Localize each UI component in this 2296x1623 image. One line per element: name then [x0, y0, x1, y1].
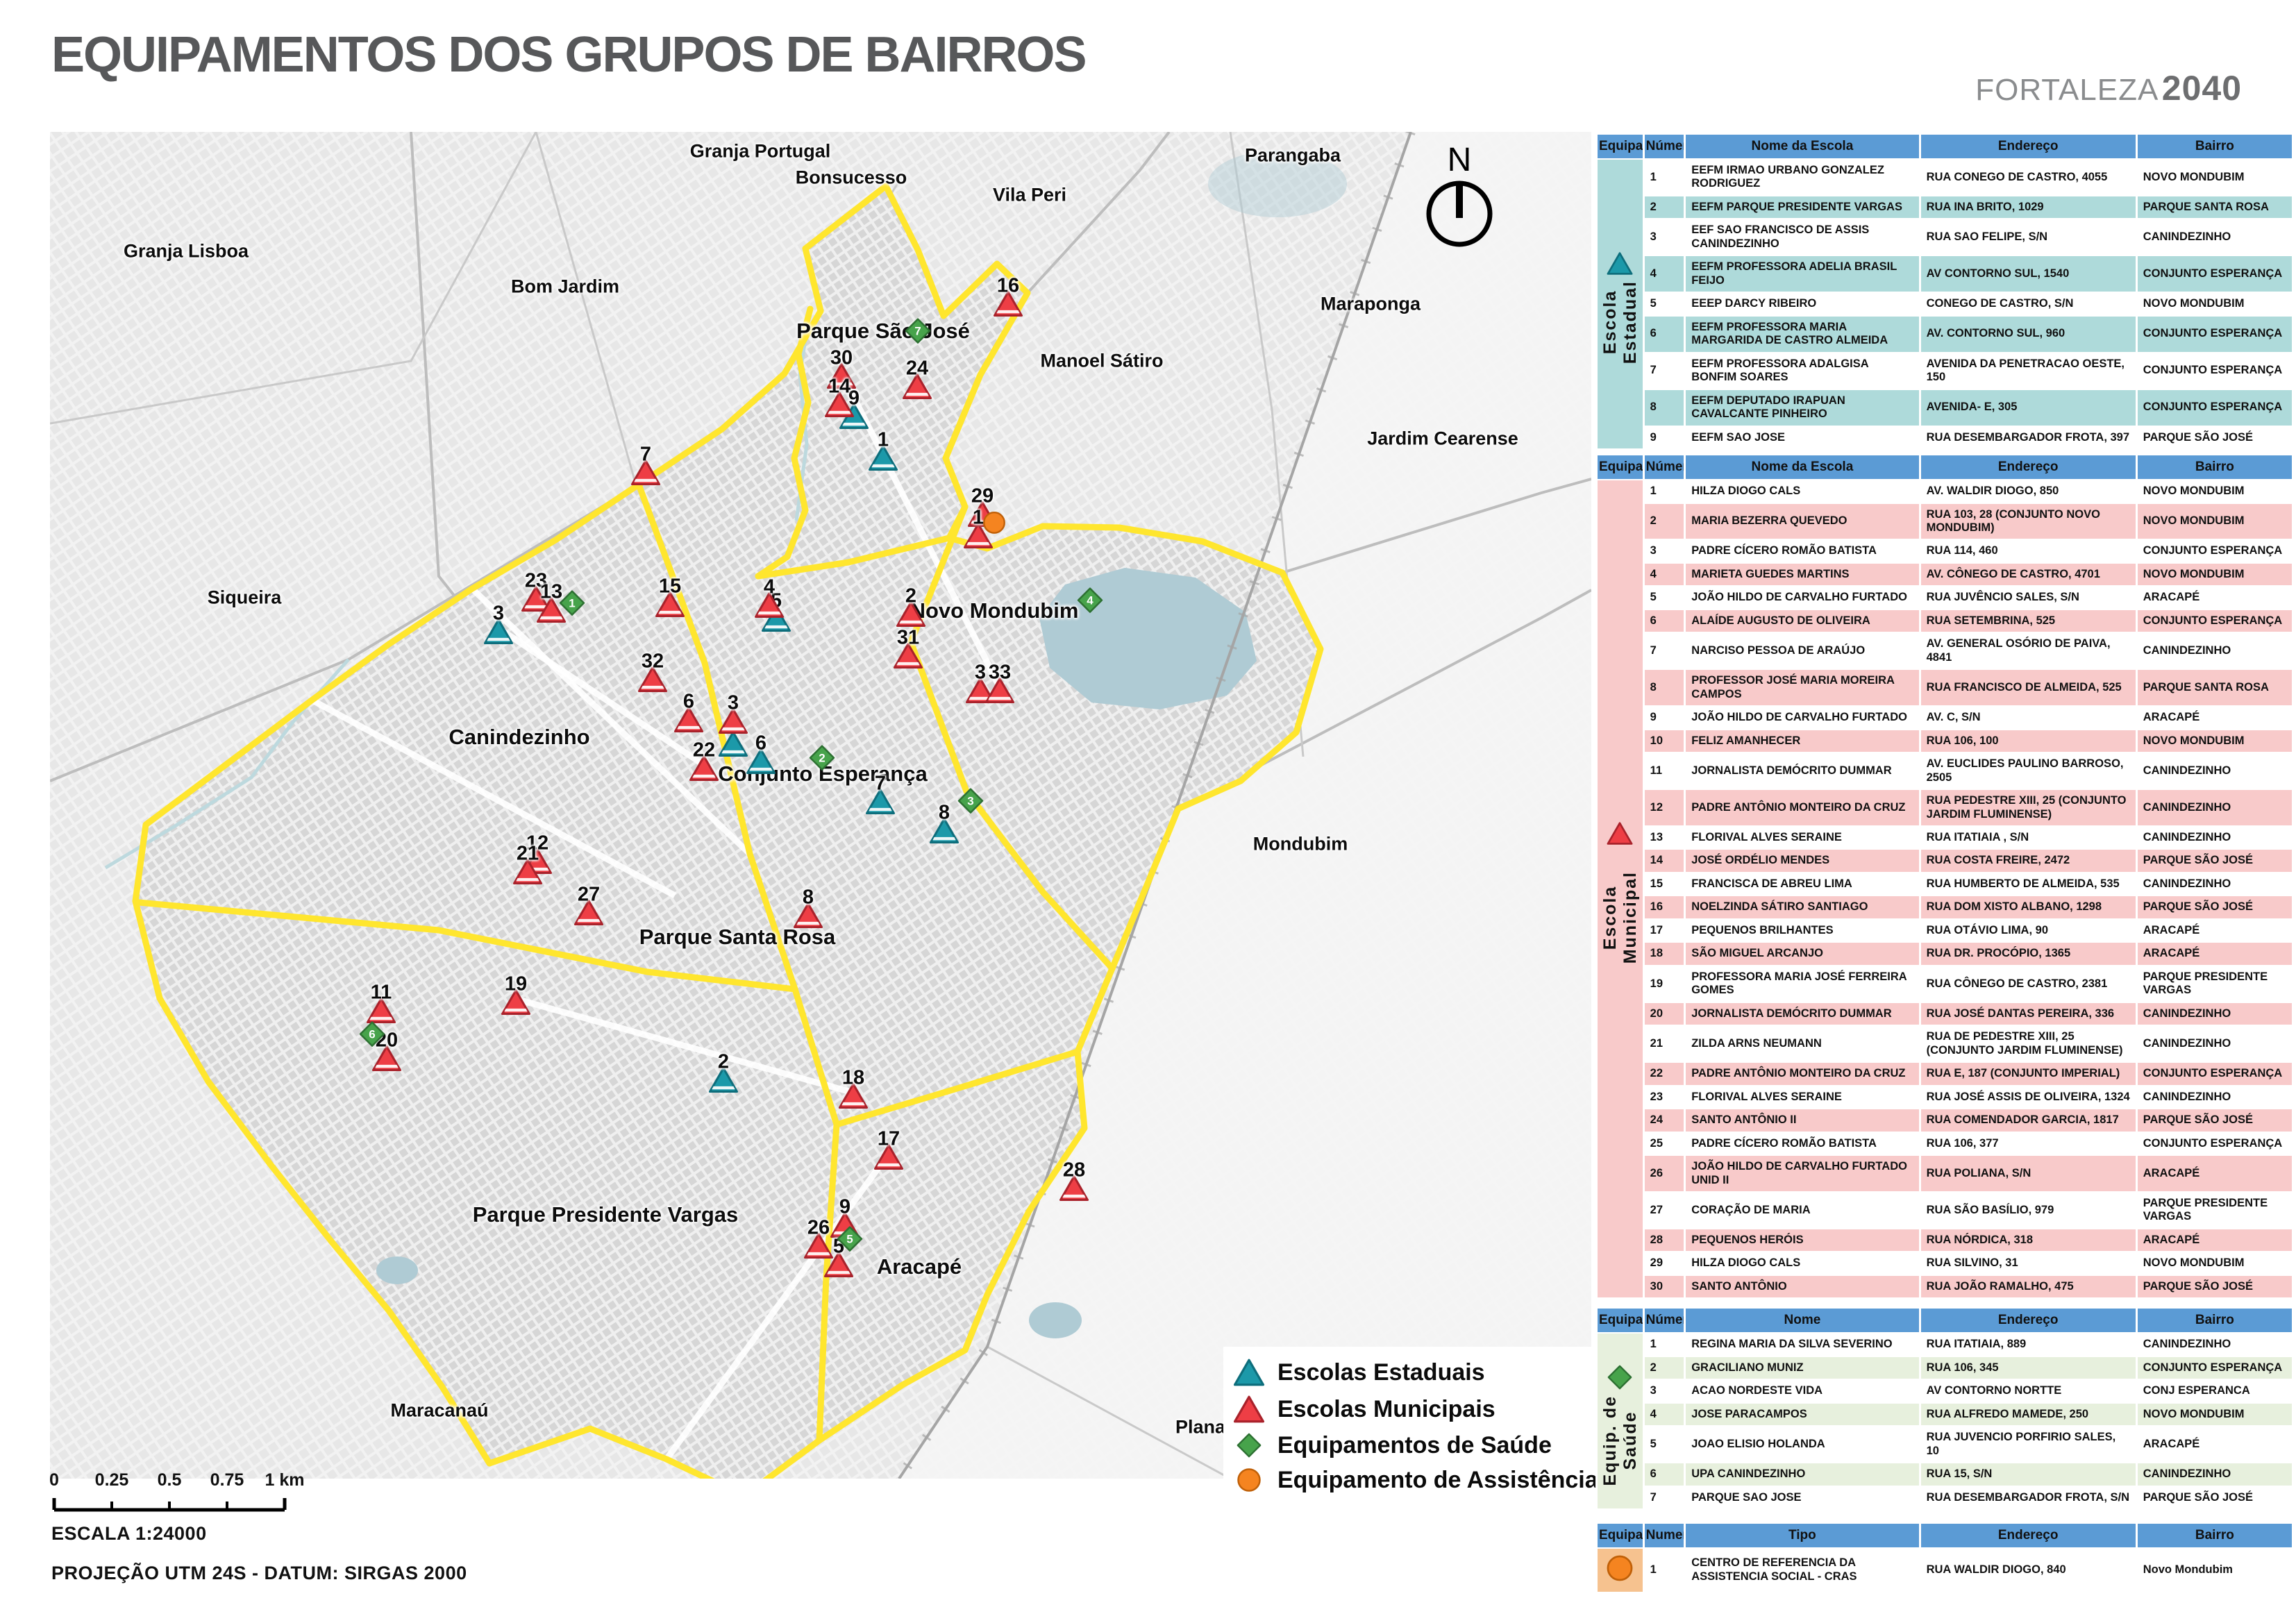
map-marker-estadual-6: 6 [745, 734, 777, 776]
cell-number: 9 [1645, 707, 1684, 728]
map-panel: N Granja PortugalBonsucessoVila PeriPara… [50, 132, 1591, 1479]
svg-text:3: 3 [967, 795, 973, 808]
map-label: Bonsucesso [796, 167, 907, 189]
cell-address: RUA WALDIR DIOGO, 840 [1921, 1549, 2136, 1591]
map-marker-municipal-6: 6 [673, 692, 705, 734]
table-row: 2EEFM PARQUE PRESIDENTE VARGASRUA INA BR… [1598, 196, 2292, 218]
cell-bairro: CANINDEZINHO [2138, 1086, 2292, 1108]
cell-address: RUA OTÁVIO LIMA, 90 [1921, 920, 2136, 941]
cell-name: ALAÍDE AUGUSTO DE OLIVEIRA [1686, 610, 1918, 632]
cell-address: AV CONTORNO SUL, 1540 [1921, 256, 2136, 292]
marker-number: 2 [905, 587, 916, 607]
cell-address: AV CONTORNO NORTTE [1921, 1380, 2136, 1402]
table-row: 6ALAÍDE AUGUSTO DE OLIVEIRARUA SETEMBRIN… [1598, 610, 2292, 632]
cell-bairro: ARACAPÉ [2138, 1229, 2292, 1251]
cell-number: 30 [1645, 1276, 1684, 1297]
marker-number: 9 [839, 1197, 850, 1218]
table-row: 7NARCISO PESSOA DE ARAÚJOAV. GENERAL OSÓ… [1598, 633, 2292, 668]
marker-number: 6 [755, 734, 766, 754]
table-row: 4MARIETA GUEDES MARTINSAV. CÔNEGO DE CAS… [1598, 564, 2292, 585]
cell-number: 4 [1645, 1404, 1684, 1425]
table-social: EquipamentosNumeroTipoEndereçoBairro 1CE… [1595, 1522, 2294, 1592]
map-marker-saude-6: 6 6 [358, 1020, 387, 1049]
cell-address: RUA 114, 460 [1921, 540, 2136, 562]
cell-bairro: CANINDEZINHO [2138, 790, 2292, 825]
column-header: Nome da Escola [1686, 135, 1918, 158]
table-header-row: EquipamentoNúmeroNome da EscolaEndereçoB… [1598, 135, 2292, 158]
marker-number: 21 [517, 844, 539, 864]
table-row: Escola Municipal 1HILZA DIOGO CALSAV. WA… [1598, 480, 2292, 502]
equipment-type-cell: Equip. de Saúde [1598, 1334, 1643, 1508]
cell-number: 7 [1645, 1487, 1684, 1508]
cell-name: HILZA DIOGO CALS [1686, 1252, 1918, 1274]
map-marker-saude-5: 5 5 [835, 1225, 864, 1254]
map-label: Granja Lisboa [124, 241, 249, 262]
equipment-tables: EquipamentoNúmeroNome da EscolaEndereçoB… [1595, 133, 2294, 1593]
map-marker-municipal-16: 16 [992, 276, 1024, 319]
marker-number: 14 [828, 377, 850, 397]
cell-number: 1 [1645, 480, 1684, 502]
equipment-type-cell: Escola Municipal [1598, 480, 1643, 1297]
cell-name: FRANCISCA DE ABREU LIMA [1686, 873, 1918, 895]
cell-name: PADRE ANTÔNIO MONTEIRO DA CRUZ [1686, 790, 1918, 825]
cell-address: RUA INA BRITO, 1029 [1921, 196, 2136, 218]
marker-number: 7 [640, 445, 651, 465]
cell-number: 4 [1645, 256, 1684, 292]
brand-name: FORTALEZA [1975, 73, 2159, 107]
cell-bairro: CONJUNTO ESPERANÇA [2138, 1357, 2292, 1379]
table-row: 29HILZA DIOGO CALSRUA SILVINO, 31NOVO MO… [1598, 1252, 2292, 1274]
column-header: Equipamento [1598, 455, 1643, 479]
cell-address: RUA JOÃO RAMALHO, 475 [1921, 1276, 2136, 1297]
circle-icon [981, 510, 1007, 536]
cell-address: RUA CONEGO DE CASTRO, 4055 [1921, 160, 2136, 195]
map-marker-estadual-3: 3 [483, 604, 514, 646]
marker-number: 8 [939, 803, 950, 823]
map-label: Mondubim [1253, 834, 1348, 855]
cell-bairro: NOVO MONDUBIM [2138, 564, 2292, 585]
saude-icon [1606, 1363, 1634, 1395]
diamond-icon: 2 [807, 743, 837, 773]
diamond-icon: 7 [903, 317, 932, 346]
cell-bairro: CONJUNTO ESPERANÇA [2138, 353, 2292, 389]
cell-address: RUA COSTA FREIRE, 2472 [1921, 850, 2136, 871]
cell-number: 5 [1645, 1427, 1684, 1462]
cell-bairro: ARACAPÉ [2138, 943, 2292, 964]
cell-address: RUA 15, S/N [1921, 1463, 2136, 1485]
map-label: Bom Jardim [511, 276, 619, 298]
cell-address: RUA 106, 377 [1921, 1133, 2136, 1154]
cell-bairro: PARQUE SÃO JOSÉ [2138, 427, 2292, 448]
cell-bairro: NOVO MONDUBIM [2138, 480, 2292, 502]
table-row: 5JOAO ELISIO HOLANDARUA JUVENCIO PORFIRI… [1598, 1427, 2292, 1462]
scale-tick-label: 0 [49, 1470, 59, 1490]
cell-address: RUA DESEMBARGADOR FROTA, 397 [1921, 427, 2136, 448]
cell-name: EEF SAO FRANCISCO DE ASSIS CANINDEZINHO [1686, 219, 1918, 255]
column-header: Número [1645, 135, 1684, 158]
cell-number: 26 [1645, 1156, 1684, 1191]
table-row: 6EEFM PROFESSORA MARIA MARGARIDA DE CAST… [1598, 317, 2292, 352]
marker-number: 17 [878, 1129, 900, 1150]
marker-number: 7 [875, 774, 886, 794]
cell-bairro: PARQUE SÃO JOSÉ [2138, 1109, 2292, 1131]
map-label: Novo Mondubim [910, 598, 1079, 623]
diamond-icon: 5 [835, 1225, 864, 1254]
cell-bairro: CANINDEZINHO [2138, 827, 2292, 848]
cell-address: RUA COMENDADOR GARCIA, 1817 [1921, 1109, 2136, 1131]
scale-tick-label: 0.25 [95, 1470, 129, 1490]
cell-name: PEQUENOS HERÓIS [1686, 1229, 1918, 1251]
cell-address: RUA DE PEDESTRE XIII, 25 (CONJUNTO JARDI… [1921, 1026, 2136, 1061]
cell-name: MARIETA GUEDES MARTINS [1686, 564, 1918, 585]
cell-number: 8 [1645, 390, 1684, 426]
cell-address: AV. EUCLIDES PAULINO BARROSO, 2505 [1921, 753, 2136, 789]
map-label: Siqueira [208, 587, 282, 609]
circle-icon [1604, 1553, 1635, 1583]
cell-number: 20 [1645, 1003, 1684, 1025]
marker-number: 18 [842, 1068, 864, 1088]
cell-number: 16 [1645, 896, 1684, 918]
cell-bairro: ARACAPÉ [2138, 1156, 2292, 1191]
cell-number: 21 [1645, 1026, 1684, 1061]
map-marker-municipal-24: 24 [901, 359, 933, 401]
cell-name: JOÃO HILDO DE CARVALHO FURTADO UNID II [1686, 1156, 1918, 1191]
map-label: Vila Peri [993, 185, 1066, 206]
cell-bairro: CONJUNTO ESPERANÇA [2138, 390, 2292, 426]
table-row: 17PEQUENOS BRILHANTESRUA OTÁVIO LIMA, 90… [1598, 920, 2292, 941]
cell-number: 3 [1645, 1380, 1684, 1402]
table-header-row: EquipamentoNúmeroNomeEndereçoBairro [1598, 1309, 2292, 1332]
cell-address: RUA NÓRDICA, 318 [1921, 1229, 2136, 1251]
map-label: Parque São José [796, 319, 970, 344]
table-row: 28PEQUENOS HERÓISRUA NÓRDICA, 318ARACAPÉ [1598, 1229, 2292, 1251]
cell-bairro: NOVO MONDUBIM [2138, 293, 2292, 314]
marker-number: 30 [830, 348, 853, 369]
equipment-type-cell: Escola Estadual [1598, 160, 1643, 448]
table-row: 20JORNALISTA DEMÓCRITO DUMMARRUA JOSÉ DA… [1598, 1003, 2292, 1025]
cell-address: RUA PEDESTRE XIII, 25 (CONJUNTO JARDIM F… [1921, 790, 2136, 825]
cell-bairro: PARQUE SÃO JOSÉ [2138, 1487, 2292, 1508]
cell-bairro: NOVO MONDUBIM [2138, 160, 2292, 195]
svg-text:5: 5 [846, 1233, 853, 1246]
cell-number: 1 [1645, 160, 1684, 195]
cell-address: RUA 106, 100 [1921, 730, 2136, 752]
table-row: 27CORAÇÃO DE MARIARUA SÃO BASÍLIO, 979PA… [1598, 1193, 2292, 1228]
cell-name: PARQUE SAO JOSE [1686, 1487, 1918, 1508]
cell-bairro: ARACAPÉ [2138, 1427, 2292, 1462]
map-label: Maracanaú [390, 1400, 488, 1422]
cell-bairro: CANINDEZINHO [2138, 1463, 2292, 1485]
table-row: Escola Estadual 1EEFM IRMAO URBANO GONZA… [1598, 160, 2292, 195]
marker-number: 19 [505, 975, 527, 995]
cell-name: JOAO ELISIO HOLANDA [1686, 1427, 1918, 1462]
cell-name: SANTO ANTÔNIO II [1686, 1109, 1918, 1131]
cell-bairro: PARQUE PRESIDENTE VARGAS [2138, 966, 2292, 1002]
map-marker-municipal-27: 27 [573, 885, 605, 927]
diamond-icon: 4 [1075, 586, 1105, 615]
map-label: Parangaba [1245, 145, 1341, 167]
map-marker-municipal-19: 19 [500, 975, 532, 1017]
compass-north-label: N [1448, 142, 1472, 178]
table-row: 3EEF SAO FRANCISCO DE ASSIS CANINDEZINHO… [1598, 219, 2292, 255]
cell-bairro: CANINDEZINHO [2138, 1003, 2292, 1025]
cell-address: RUA POLIANA, S/N [1921, 1156, 2136, 1191]
cell-address: RUA DOM XISTO ALBANO, 1298 [1921, 896, 2136, 918]
table-row: 16NOELZINDA SÁTIRO SANTIAGORUA DOM XISTO… [1598, 896, 2292, 918]
brand-year: 2040 [2162, 69, 2242, 108]
legend-label: Escolas Estaduais [1277, 1359, 1485, 1386]
map-marker-estadual-1: 1 [867, 430, 899, 473]
cell-name: NOELZINDA SÁTIRO SANTIAGO [1686, 896, 1918, 918]
table-saude: EquipamentoNúmeroNomeEndereçoBairro Equi… [1595, 1307, 2294, 1510]
cell-name: SÃO MIGUEL ARCANJO [1686, 943, 1918, 964]
map-marker-municipal-28: 28 [1058, 1161, 1090, 1203]
table-side-label: Escola Municipal [1600, 871, 1641, 964]
marker-number: 2 [718, 1052, 729, 1073]
cell-number: 12 [1645, 790, 1684, 825]
legend-label: Equipamentos de Saúde [1277, 1432, 1552, 1459]
scale-text: ESCALA 1:24000 [51, 1523, 440, 1545]
cell-bairro: CANINDEZINHO [2138, 633, 2292, 668]
pond [376, 1256, 418, 1284]
column-header: Endereço [1921, 1524, 2136, 1547]
cell-name: FLORIVAL ALVES SERAINE [1686, 827, 1918, 848]
column-header: Equipamento [1598, 1309, 1643, 1332]
map-marker-municipal-33: 33 [984, 663, 1016, 705]
cell-name: PROFESSORA MARIA JOSÉ FERREIRA GOMES [1686, 966, 1918, 1002]
cell-name: SANTO ANTÔNIO [1686, 1276, 1918, 1297]
table-header-row: EquipamentoNúmeroNome da EscolaEndereçoB… [1598, 455, 2292, 479]
cell-name: MARIA BEZERRA QUEVEDO [1686, 504, 1918, 539]
cell-number: 11 [1645, 753, 1684, 789]
cell-number: 19 [1645, 966, 1684, 1002]
cell-name: FLORIVAL ALVES SERAINE [1686, 1086, 1918, 1108]
cell-bairro: NOVO MONDUBIM [2138, 1252, 2292, 1274]
cell-name: JOÃO HILDO DE CARVALHO FURTADO [1686, 587, 1918, 608]
table-row: 10FELIZ AMANHECERRUA 106, 100NOVO MONDUB… [1598, 730, 2292, 752]
cell-bairro: CANINDEZINHO [2138, 753, 2292, 789]
map-label: Maraponga [1321, 294, 1421, 315]
cell-address: AV. CONTORNO SUL, 960 [1921, 317, 2136, 352]
cell-address: AVENIDA DA PENETRACAO OESTE, 150 [1921, 353, 2136, 389]
cell-number: 22 [1645, 1063, 1684, 1084]
map-marker-municipal-21: 21 [512, 844, 544, 886]
table-row: 13FLORIVAL ALVES SERAINERUA ITATIAIA , S… [1598, 827, 2292, 848]
cell-number: 1 [1645, 1334, 1684, 1355]
cell-address: RUA CÔNEGO DE CASTRO, 2381 [1921, 966, 2136, 1002]
cell-name: ZILDA ARNS NEUMANN [1686, 1026, 1918, 1061]
cell-number: 17 [1645, 920, 1684, 941]
cell-name: NARCISO PESSOA DE ARAÚJO [1686, 633, 1918, 668]
column-header: Bairro [2138, 1524, 2292, 1547]
cell-address: RUA JUVÊNCIO SALES, S/N [1921, 587, 2136, 608]
column-header: Nome da Escola [1686, 455, 1918, 479]
cell-name: JOSÉ ORDÉLIO MENDES [1686, 850, 1918, 871]
table-row: 22PADRE ANTÔNIO MONTEIRO DA CRUZRUA E, 1… [1598, 1063, 2292, 1084]
cell-number: 6 [1645, 610, 1684, 632]
cell-number: 3 [1645, 219, 1684, 255]
legend-estadual-icon [1230, 1358, 1268, 1388]
map-label: Granja Portugal [690, 141, 831, 162]
svg-text:6: 6 [369, 1028, 375, 1041]
municipal-icon [1606, 821, 1634, 850]
table-side-label: Equip. de Saúde [1600, 1395, 1641, 1486]
table-header-row: EquipamentosNumeroTipoEndereçoBairro [1598, 1524, 2292, 1547]
column-header: Endereço [1921, 135, 2136, 158]
scale-tick-label: 0.75 [210, 1470, 244, 1490]
projection-text: PROJEÇÃO UTM 24S - DATUM: SIRGAS 2000 [51, 1563, 440, 1584]
cell-bairro: NOVO MONDUBIM [2138, 730, 2292, 752]
cell-address: CONEGO DE CASTRO, S/N [1921, 293, 2136, 314]
cell-number: 10 [1645, 730, 1684, 752]
cell-number: 6 [1645, 317, 1684, 352]
cell-name: EEFM DEPUTADO IRAPUAN CAVALCANTE PINHEIR… [1686, 390, 1918, 426]
cell-number: 25 [1645, 1133, 1684, 1154]
map-marker-municipal-31: 31 [892, 628, 924, 671]
cell-bairro: CANINDEZINHO [2138, 1026, 2292, 1061]
cell-name: GRACILIANO MUNIZ [1686, 1357, 1918, 1379]
legend-label: Escolas Municipais [1277, 1396, 1495, 1423]
table-row: 18SÃO MIGUEL ARCANJORUA DR. PROCÓPIO, 13… [1598, 943, 2292, 964]
triangle-icon [1232, 1358, 1266, 1388]
table-row: 7PARQUE SAO JOSERUA DESEMBARGADOR FROTA,… [1598, 1487, 2292, 1508]
pond [1029, 1302, 1082, 1338]
cell-bairro: ARACAPÉ [2138, 707, 2292, 728]
table-row: 7EEFM PROFESSORA ADALGISA BONFIM SOARESA… [1598, 353, 2292, 389]
table-row: 2GRACILIANO MUNIZRUA 106, 345CONJUNTO ES… [1598, 1357, 2292, 1379]
table-row: 6UPA CANINDEZINHORUA 15, S/NCANINDEZINHO [1598, 1463, 2292, 1485]
marker-number: 6 [683, 692, 694, 712]
marker-number: 33 [989, 663, 1011, 683]
map-marker-saude-2: 2 2 [807, 743, 837, 773]
marker-number: 29 [971, 487, 994, 507]
cell-bairro: PARQUE SÃO JOSÉ [2138, 1276, 2292, 1297]
cell-bairro: Novo Mondubim [2138, 1549, 2292, 1591]
cell-bairro: CONJUNTO ESPERANÇA [2138, 540, 2292, 562]
cell-address: RUA DESEMBARGADOR FROTA, S/N [1921, 1487, 2136, 1508]
table-row: 21ZILDA ARNS NEUMANNRUA DE PEDESTRE XIII… [1598, 1026, 2292, 1061]
cell-number: 29 [1645, 1252, 1684, 1274]
circle-icon [1235, 1466, 1263, 1494]
cell-name: PROFESSOR JOSÉ MARIA MOREIRA CAMPOS [1686, 670, 1918, 705]
cell-bairro: ARACAPÉ [2138, 920, 2292, 941]
cell-name: EEEP DARCY RIBEIRO [1686, 293, 1918, 314]
map-marker-municipal-7: 7 [630, 445, 662, 487]
cell-address: RUA 103, 28 (CONJUNTO NOVO MONDUBIM) [1921, 504, 2136, 539]
column-header: Bairro [2138, 1309, 2292, 1332]
estadual-icon [1606, 251, 1634, 280]
legend-saude-icon [1230, 1431, 1268, 1459]
cell-bairro: NOVO MONDUBIM [2138, 1404, 2292, 1425]
marker-number: 8 [803, 888, 814, 908]
table-row: 5JOÃO HILDO DE CARVALHO FURTADORUA JUVÊN… [1598, 587, 2292, 608]
equipment-type-cell [1598, 1549, 1643, 1591]
map-marker-estadual-2: 2 [707, 1052, 739, 1095]
scale-tick-labels: 00.250.50.751 km [51, 1470, 440, 1491]
cell-name: EEFM PROFESSORA ADELIA BRASIL FEIJO [1686, 256, 1918, 292]
cell-number: 18 [1645, 943, 1684, 964]
cell-address: AV. CÔNEGO DE CASTRO, 4701 [1921, 564, 2136, 585]
marker-number: 11 [371, 983, 392, 1003]
cell-address: RUA JOSÉ DANTAS PEREIRA, 336 [1921, 1003, 2136, 1025]
cell-address: RUA JUVENCIO PORFIRIO SALES, 10 [1921, 1427, 2136, 1462]
cell-bairro: PARQUE SANTA ROSA [2138, 670, 2292, 705]
cell-address: RUA SETEMBRINA, 525 [1921, 610, 2136, 632]
cell-address: RUA E, 187 (CONJUNTO IMPERIAL) [1921, 1063, 2136, 1084]
column-header: Número [1645, 455, 1684, 479]
cell-address: RUA JOSÉ ASSIS DE OLIVEIRA, 1324 [1921, 1086, 2136, 1108]
marker-number: 32 [642, 652, 664, 672]
map-marker-saude-7: 7 7 [903, 317, 932, 346]
cell-number: 2 [1645, 196, 1684, 218]
map-marker-municipal-15: 15 [654, 577, 686, 619]
cell-name: UPA CANINDEZINHO [1686, 1463, 1918, 1485]
map-label: Parque Presidente Vargas [473, 1202, 739, 1227]
cell-bairro: ARACAPÉ [2138, 587, 2292, 608]
column-header: Equipamento [1598, 135, 1643, 158]
cell-name: CENTRO DE REFERENCIA DA ASSISTENCIA SOCI… [1686, 1549, 1918, 1591]
column-header: Bairro [2138, 455, 2292, 479]
table-estadual: EquipamentoNúmeroNome da EscolaEndereçoB… [1595, 133, 2294, 450]
table-row: 1CENTRO DE REFERENCIA DA ASSISTENCIA SOC… [1598, 1549, 2292, 1591]
map-marker-municipal-2: 2 [895, 587, 927, 629]
cell-name: JOSE PARACAMPOS [1686, 1404, 1918, 1425]
cell-bairro: CANINDEZINHO [2138, 1334, 2292, 1355]
table-row: 30SANTO ANTÔNIORUA JOÃO RAMALHO, 475PARQ… [1598, 1276, 2292, 1297]
cell-name: CORAÇÃO DE MARIA [1686, 1193, 1918, 1228]
map-marker-municipal-8: 8 [792, 888, 824, 930]
table-row: 14JOSÉ ORDÉLIO MENDESRUA COSTA FREIRE, 2… [1598, 850, 2292, 871]
cell-address: AV. GENERAL OSÓRIO DE PAIVA, 4841 [1921, 633, 2136, 668]
map-label: Aracapé [877, 1254, 962, 1279]
table-row: 8PROFESSOR JOSÉ MARIA MOREIRA CAMPOSRUA … [1598, 670, 2292, 705]
cell-number: 7 [1645, 353, 1684, 389]
social-icon [1604, 1553, 1635, 1587]
cell-number: 1 [1645, 1549, 1684, 1591]
map-marker-municipal-18: 18 [837, 1068, 869, 1111]
cell-name: JOÃO HILDO DE CARVALHO FURTADO [1686, 707, 1918, 728]
column-header: Endereço [1921, 455, 2136, 479]
brand-logo: FORTALEZA 2040 [1975, 68, 2242, 108]
cell-bairro: PARQUE SÃO JOSÉ [2138, 850, 2292, 871]
cell-name: FELIZ AMANHECER [1686, 730, 1918, 752]
svg-text:1: 1 [569, 597, 575, 610]
cell-number: 5 [1645, 293, 1684, 314]
cell-name: EEFM PROFESSORA ADALGISA BONFIM SOARES [1686, 353, 1918, 389]
table-row: 9JOÃO HILDO DE CARVALHO FURTADOAV. C, S/… [1598, 707, 2292, 728]
table-row: 3PADRE CÍCERO ROMÃO BATISTARUA 114, 460C… [1598, 540, 2292, 562]
cell-address: RUA FRANCISCO DE ALMEIDA, 525 [1921, 670, 2136, 705]
cell-number: 4 [1645, 564, 1684, 585]
table-side-label: Escola Estadual [1600, 280, 1641, 364]
cell-address: AVENIDA- E, 305 [1921, 390, 2136, 426]
table-row: 23FLORIVAL ALVES SERAINERUA JOSÉ ASSIS D… [1598, 1086, 2292, 1108]
cell-bairro: CONJUNTO ESPERANÇA [2138, 256, 2292, 292]
triangle-icon [1232, 1395, 1266, 1424]
table-row: 8EEFM DEPUTADO IRAPUAN CAVALCANTE PINHEI… [1598, 390, 2292, 426]
poster-page: EQUIPAMENTOS DOS GRUPOS DE BAIRROS FORTA… [0, 0, 2296, 1623]
marker-number: 3 [493, 604, 504, 624]
cell-bairro: NOVO MONDUBIM [2138, 504, 2292, 539]
map-marker-municipal-4: 4 [753, 578, 785, 620]
cell-number: 14 [1645, 850, 1684, 871]
cell-bairro: CONJUNTO ESPERANÇA [2138, 610, 2292, 632]
marker-number: 22 [693, 741, 715, 761]
table-row: 24SANTO ANTÔNIO IIRUA COMENDADOR GARCIA,… [1598, 1109, 2292, 1131]
cell-number: 15 [1645, 873, 1684, 895]
map-marker-municipal-32: 32 [637, 652, 669, 694]
table-row: 19PROFESSORA MARIA JOSÉ FERREIRA GOMESRU… [1598, 966, 2292, 1002]
